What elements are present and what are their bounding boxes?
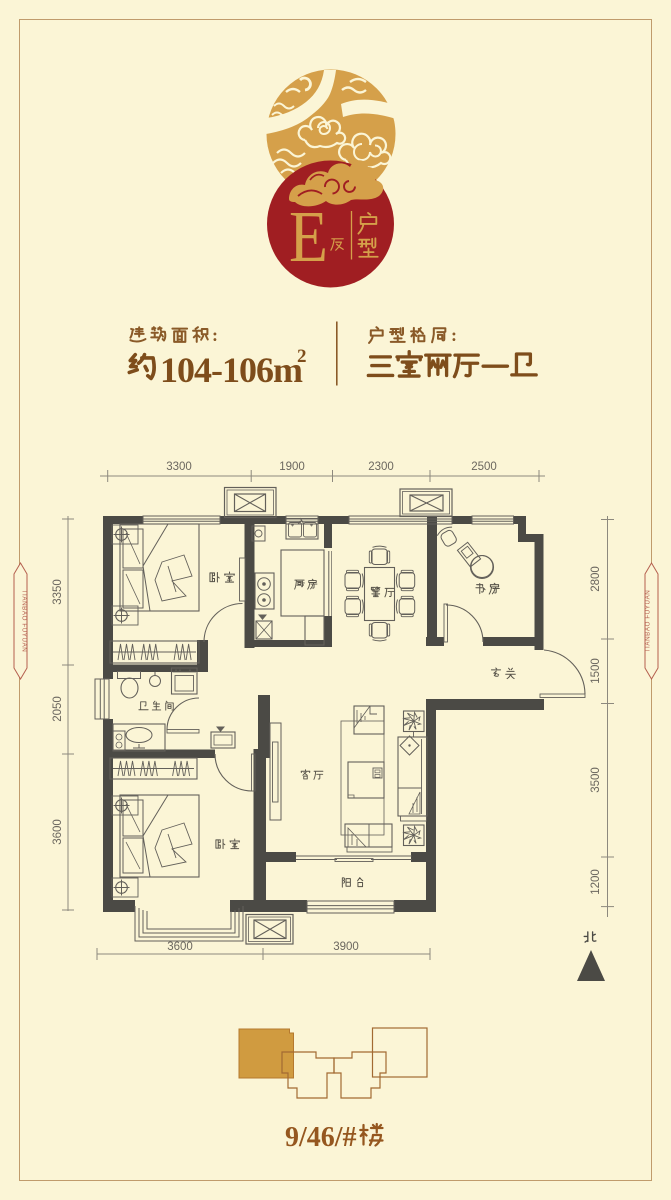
svg-text:2050: 2050 bbox=[52, 696, 64, 722]
svg-text:2500: 2500 bbox=[471, 461, 497, 473]
svg-text::: : bbox=[212, 325, 218, 345]
svg-text::: : bbox=[451, 325, 457, 345]
svg-text:2300: 2300 bbox=[368, 461, 394, 473]
svg-text:3500: 3500 bbox=[590, 767, 602, 793]
svg-text:3350: 3350 bbox=[52, 579, 64, 605]
svg-text:3600: 3600 bbox=[167, 941, 193, 953]
svg-text:1900: 1900 bbox=[279, 461, 305, 473]
svg-text:TIANBAO FUYUAN: TIANBAO FUYUAN bbox=[21, 590, 28, 653]
svg-text:104-106m: 104-106m bbox=[160, 350, 303, 390]
svg-text:1500: 1500 bbox=[590, 658, 602, 684]
svg-text:3900: 3900 bbox=[333, 941, 359, 953]
svg-text:E: E bbox=[289, 196, 328, 277]
svg-text:1200: 1200 bbox=[590, 869, 602, 895]
svg-text:3300: 3300 bbox=[166, 461, 192, 473]
svg-text:TIANBAO FUYUAN: TIANBAO FUYUAN bbox=[645, 590, 652, 653]
svg-text:2800: 2800 bbox=[590, 566, 602, 592]
svg-text:9/46/#: 9/46/# bbox=[285, 1122, 357, 1153]
svg-text:3600: 3600 bbox=[52, 819, 64, 845]
svg-text:2: 2 bbox=[297, 346, 307, 367]
